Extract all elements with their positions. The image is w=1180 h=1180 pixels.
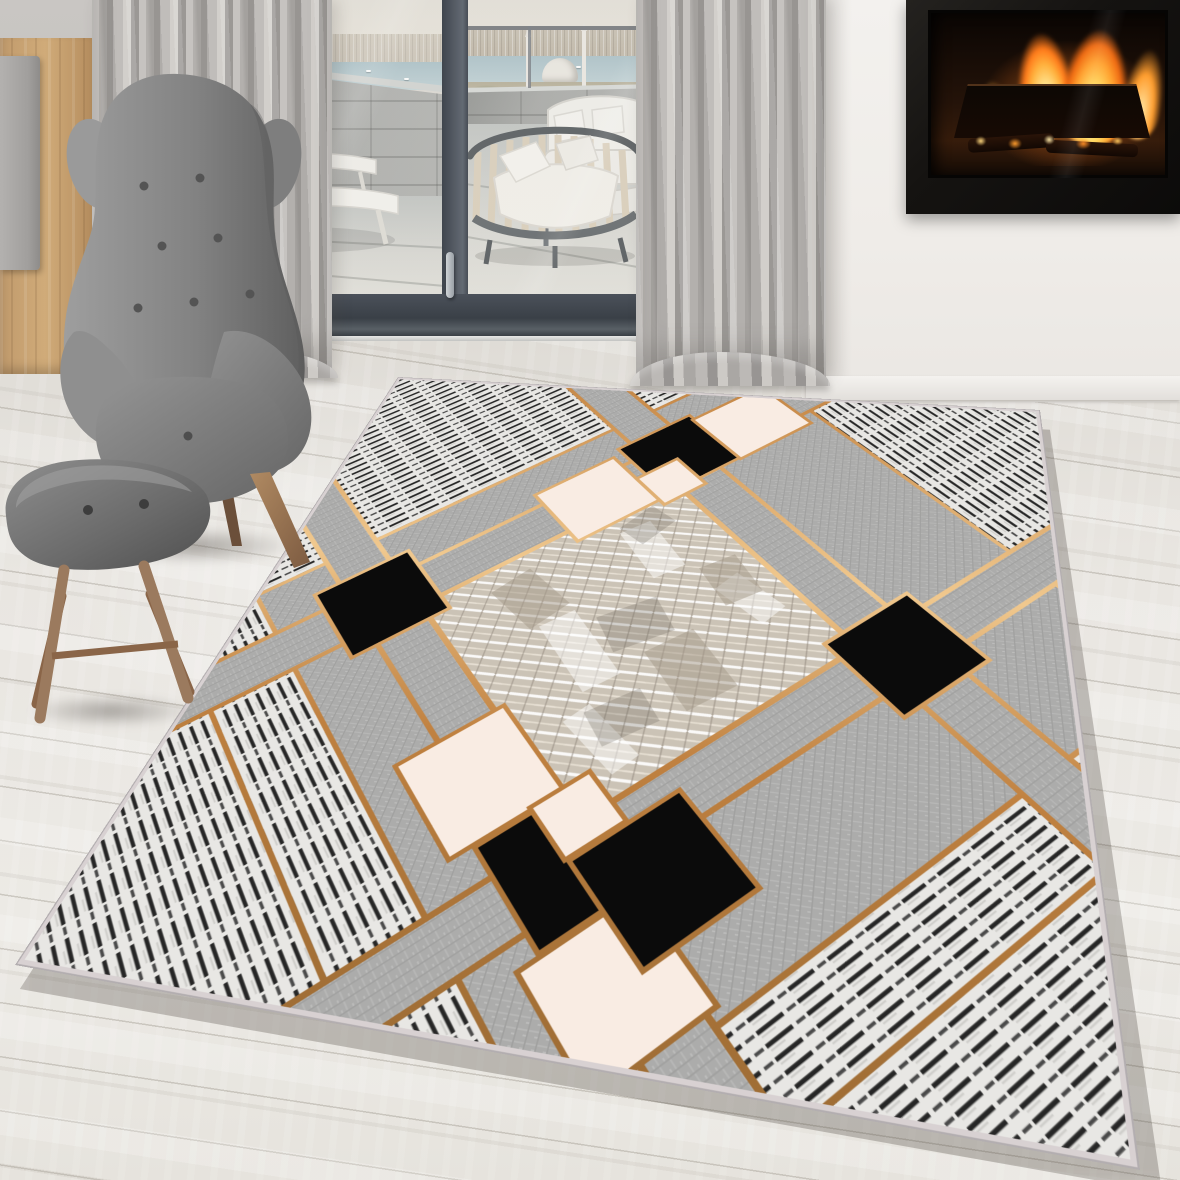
living-room-scene bbox=[0, 0, 1180, 1180]
window-pane-right bbox=[456, 0, 660, 302]
stool-button bbox=[139, 499, 149, 509]
door-handle[interactable] bbox=[446, 252, 454, 298]
seat-button bbox=[184, 432, 193, 441]
fireplace-glass bbox=[928, 10, 1168, 178]
stool-brace bbox=[52, 644, 178, 656]
curtain-middle[interactable] bbox=[636, 0, 826, 378]
stool-button bbox=[83, 505, 93, 515]
glass-reflection bbox=[456, 0, 660, 302]
footstool[interactable] bbox=[0, 446, 236, 746]
baseboard bbox=[806, 376, 1180, 400]
